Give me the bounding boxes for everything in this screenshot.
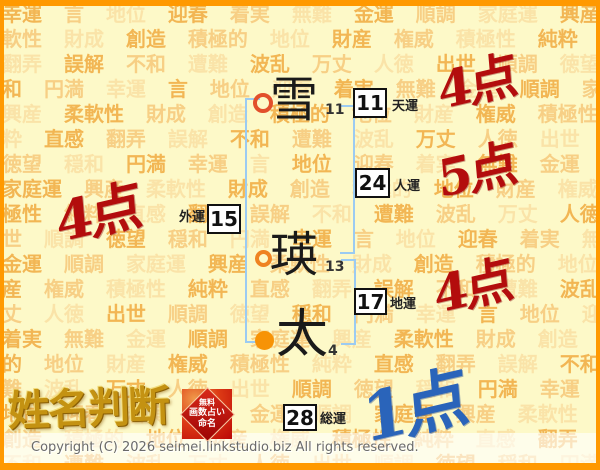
gaiun-bracket <box>245 98 260 343</box>
free-kazu-uranai-seal[interactable]: 無料 画数占い 命名 <box>182 389 232 439</box>
name-char-1: 雪 <box>270 76 318 124</box>
soun-label: 総運 <box>320 413 346 426</box>
gaiun-label: 外運 <box>179 211 205 224</box>
seal-line-1: 無料 <box>199 398 215 408</box>
jinun-value-box: 24 <box>355 168 390 198</box>
gaiun-score: 4点 <box>54 179 142 250</box>
name-char-3: 太 <box>276 309 328 361</box>
gaiun-value-box: 15 <box>207 204 241 234</box>
name-char-2: 瑛 <box>270 231 318 279</box>
tenun-value-box: 11 <box>353 88 387 118</box>
chiun-label: 地運 <box>390 298 416 311</box>
copyright-text: Copyright (C) 2026 seimei.linkstudio.biz… <box>31 440 419 455</box>
jinun-score: 5点 <box>436 138 517 204</box>
seimei-result-panel: 幸運 言 地位 迎春 着実 無難 金運 順調 家庭運 興産 柔軟性 財成 創造 … <box>0 0 600 470</box>
stroke-count-3: 4 <box>328 344 338 358</box>
chiun-score: 4点 <box>432 254 513 320</box>
site-logo[interactable]: 姓名判断 <box>7 385 168 433</box>
seal-line-3: 命名 <box>198 419 216 430</box>
seal-text: 無料 画数占い 命名 <box>182 389 232 439</box>
jinun-bracket <box>340 105 355 254</box>
stroke-count-1: 11 <box>325 103 344 117</box>
soun-value-box: 28 <box>283 404 317 431</box>
tenun-label: 天運 <box>392 100 418 113</box>
stroke-count-2: 13 <box>325 260 344 274</box>
chiun-value-box: 17 <box>354 288 387 315</box>
jinun-label: 人運 <box>394 180 420 193</box>
tenun-score: 4点 <box>436 50 517 116</box>
seal-line-2: 画数占い <box>189 408 225 419</box>
soun-score: 1点 <box>360 364 469 451</box>
given-char2-marker-icon <box>255 331 274 350</box>
